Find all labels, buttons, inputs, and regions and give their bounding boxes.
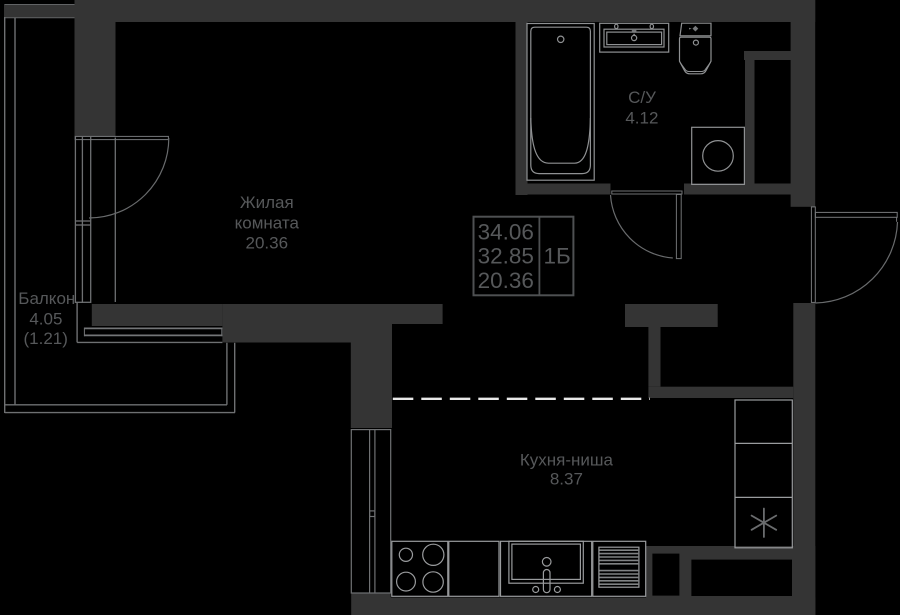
svg-text:8.37: 8.37 — [550, 469, 583, 488]
svg-text:34.06: 34.06 — [478, 219, 534, 244]
svg-text:4.12: 4.12 — [625, 109, 658, 128]
svg-text:С/У: С/У — [628, 88, 656, 107]
svg-text:1Б: 1Б — [544, 244, 571, 269]
svg-text:Жилая: Жилая — [240, 193, 294, 212]
svg-text:Балкон: Балкон — [18, 289, 75, 308]
svg-text:4.05: 4.05 — [29, 309, 62, 328]
svg-text:32.85: 32.85 — [478, 244, 534, 269]
svg-text:комната: комната — [235, 213, 300, 232]
svg-text:(1.21): (1.21) — [23, 329, 67, 348]
svg-text:Кухня-ниша: Кухня-ниша — [520, 451, 614, 470]
svg-text:20.36: 20.36 — [478, 268, 534, 293]
svg-text:20.36: 20.36 — [246, 233, 289, 252]
